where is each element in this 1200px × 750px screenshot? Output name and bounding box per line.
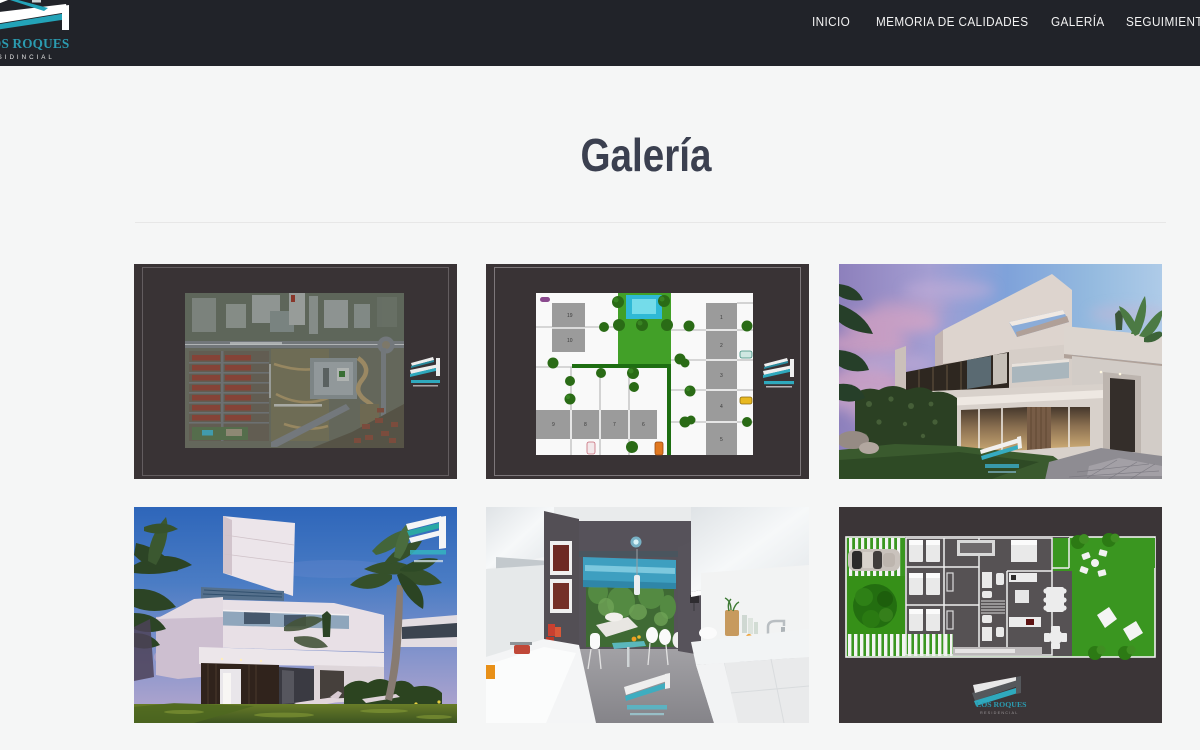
- svg-text:8: 8: [584, 422, 587, 428]
- svg-text:1: 1: [720, 315, 723, 321]
- svg-text:LOS ROQUES: LOS ROQUES: [0, 36, 69, 51]
- svg-text:RESIDINCIAL: RESIDINCIAL: [0, 54, 55, 61]
- svg-text:5: 5: [720, 437, 723, 443]
- svg-text:10: 10: [567, 338, 573, 344]
- svg-text:2: 2: [720, 343, 723, 349]
- svg-text:4: 4: [720, 404, 723, 410]
- svg-text:LOS ROQUES: LOS ROQUES: [976, 700, 1026, 709]
- svg-text:7: 7: [613, 422, 616, 428]
- svg-text:19: 19: [567, 313, 573, 319]
- svg-text:9: 9: [552, 422, 555, 428]
- svg-text:3: 3: [720, 373, 723, 379]
- svg-text:6: 6: [642, 422, 645, 428]
- svg-text:RESIDENCIAL: RESIDENCIAL: [980, 711, 1019, 715]
